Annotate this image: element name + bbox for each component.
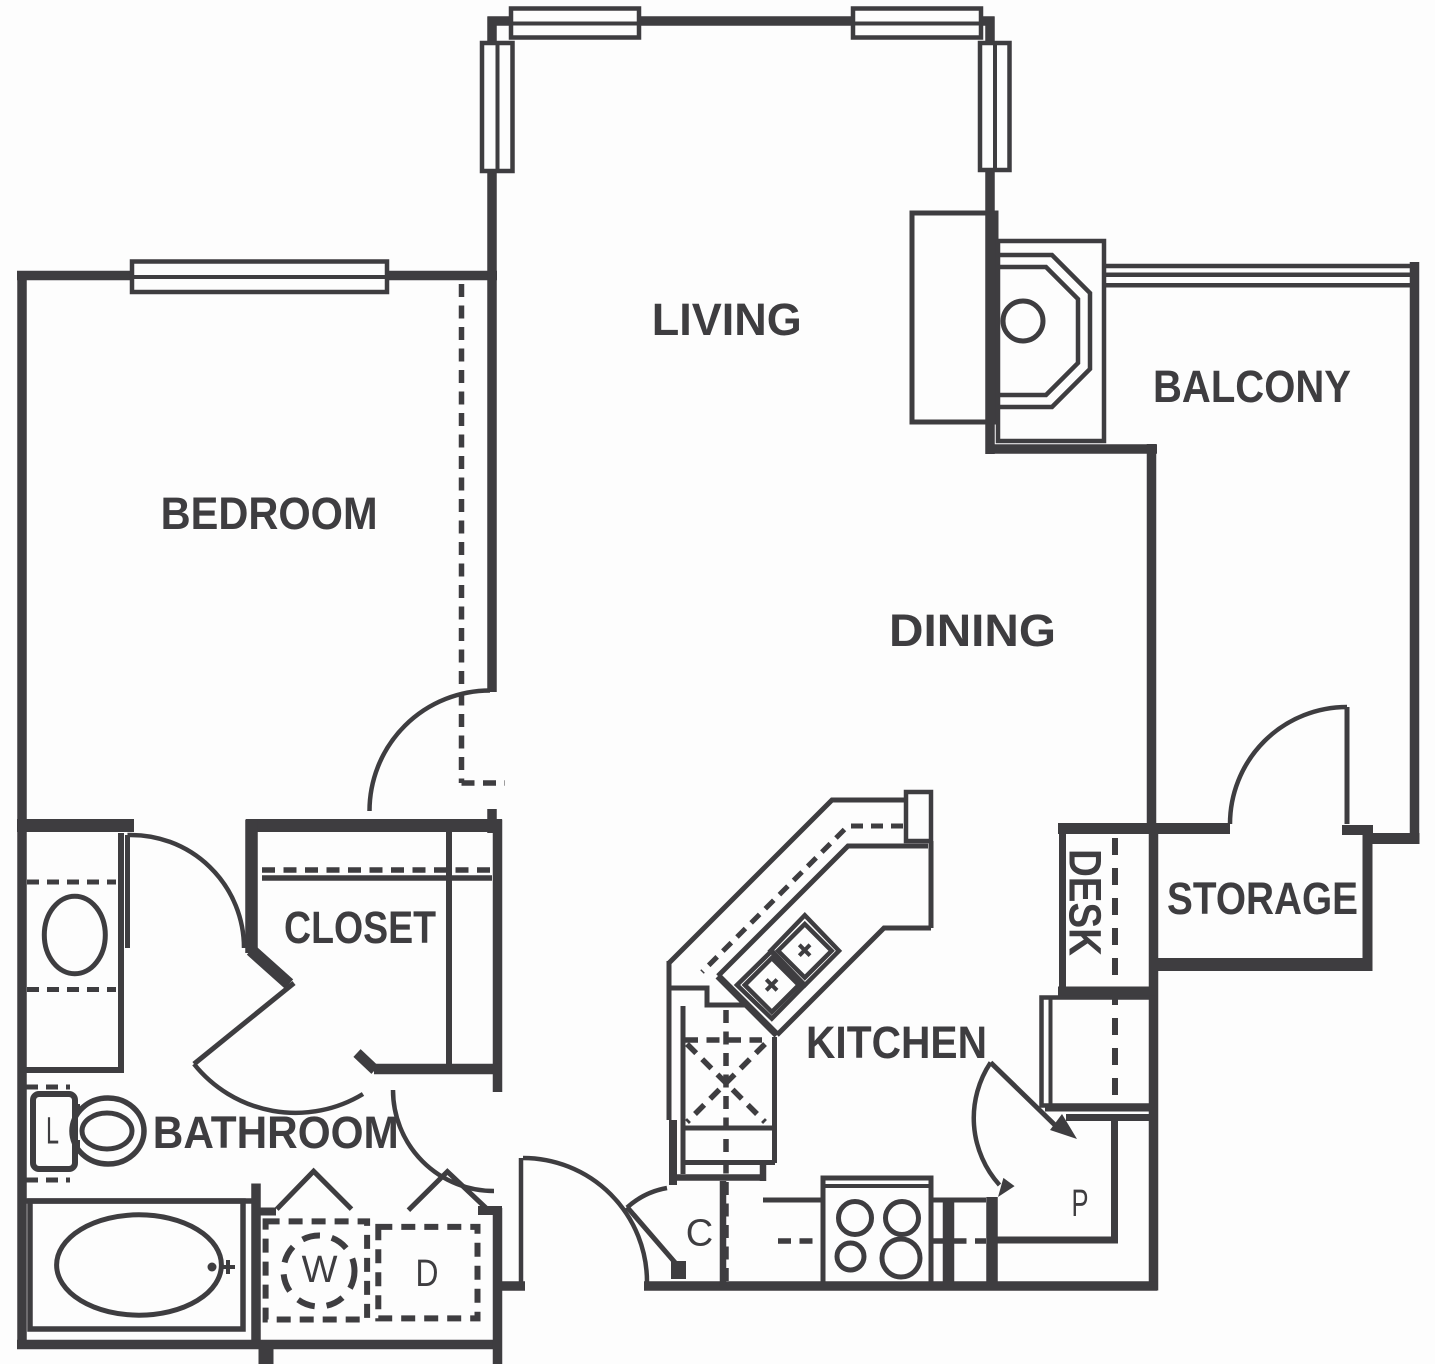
svg-text:W: W xyxy=(302,1249,338,1291)
svg-text:BEDROOM: BEDROOM xyxy=(161,488,378,539)
svg-text:STORAGE: STORAGE xyxy=(1167,873,1358,924)
svg-text:BALCONY: BALCONY xyxy=(1153,361,1351,412)
svg-text:DINING: DINING xyxy=(889,605,1056,656)
svg-text:D: D xyxy=(416,1253,439,1295)
svg-text:C: C xyxy=(686,1213,713,1255)
svg-text:BATHROOM: BATHROOM xyxy=(153,1107,399,1158)
svg-text:P: P xyxy=(1072,1183,1089,1225)
svg-text:CLOSET: CLOSET xyxy=(284,902,436,953)
svg-text:LIVING: LIVING xyxy=(652,294,802,345)
svg-text:KITCHEN: KITCHEN xyxy=(806,1017,987,1068)
svg-text:DESK: DESK xyxy=(1060,849,1111,956)
svg-text:L: L xyxy=(46,1111,59,1153)
